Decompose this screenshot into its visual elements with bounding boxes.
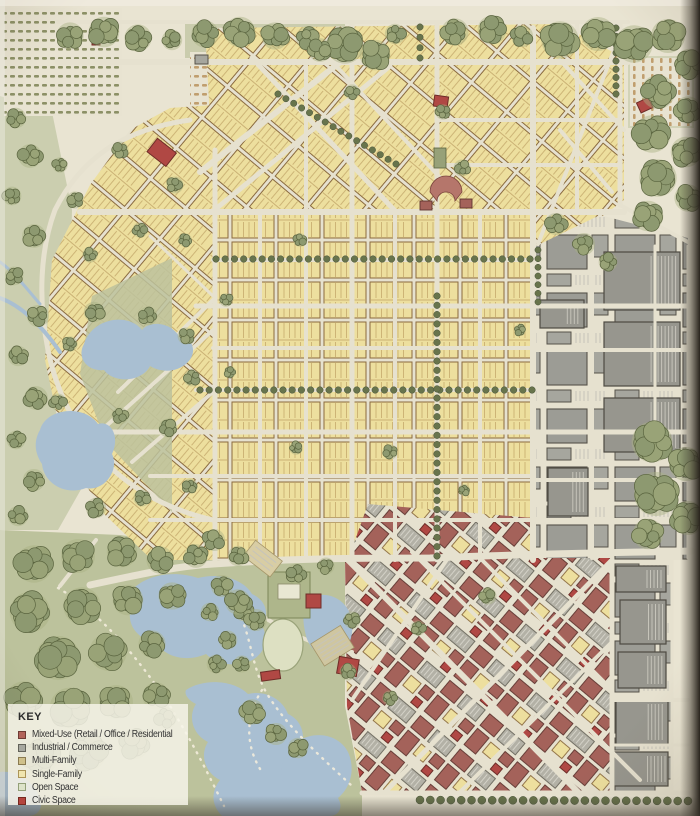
legend-swatch-multi-family bbox=[18, 757, 26, 765]
legend-item-single-family: Single-Family bbox=[18, 768, 182, 781]
legend-swatch-civic-space bbox=[18, 797, 26, 805]
legend-item-mixed-use: Mixed-Use (Retail / Office / Residential bbox=[18, 728, 182, 741]
legend-item-multi-family: Multi-Family bbox=[18, 754, 182, 767]
top-edge-highlight bbox=[0, 0, 700, 6]
legend-swatch-mixed-use bbox=[18, 731, 26, 739]
legend-item-industrial: Industrial / Commerce bbox=[18, 741, 182, 754]
left-edge-highlight bbox=[0, 0, 5, 816]
right-photo-edge bbox=[680, 0, 700, 816]
legend-swatch-industrial bbox=[18, 744, 26, 752]
master-plan-photo: KEY Mixed-Use (Retail / Office / Residen… bbox=[0, 0, 700, 816]
legend-label-open-space: Open Space bbox=[32, 782, 78, 793]
legend-swatch-open-space bbox=[18, 783, 26, 791]
legend-swatch-single-family bbox=[18, 770, 26, 778]
legend-item-open-space: Open Space bbox=[18, 781, 182, 794]
legend-label-single-family: Single-Family bbox=[32, 769, 82, 780]
photo-edge-layer bbox=[0, 0, 700, 816]
legend-label-multi-family: Multi-Family bbox=[32, 755, 76, 766]
map-key: KEY Mixed-Use (Retail / Office / Residen… bbox=[8, 704, 188, 805]
legend-label-industrial: Industrial / Commerce bbox=[32, 742, 113, 753]
map-key-title: KEY bbox=[18, 711, 182, 723]
legend-label-civic-space: Civic Space bbox=[32, 795, 76, 806]
legend-item-civic-space: Civic Space bbox=[18, 794, 182, 807]
master-plan-map bbox=[0, 0, 700, 816]
legend-label-mixed-use: Mixed-Use (Retail / Office / Residential bbox=[32, 729, 172, 740]
vignette bbox=[0, 0, 700, 816]
